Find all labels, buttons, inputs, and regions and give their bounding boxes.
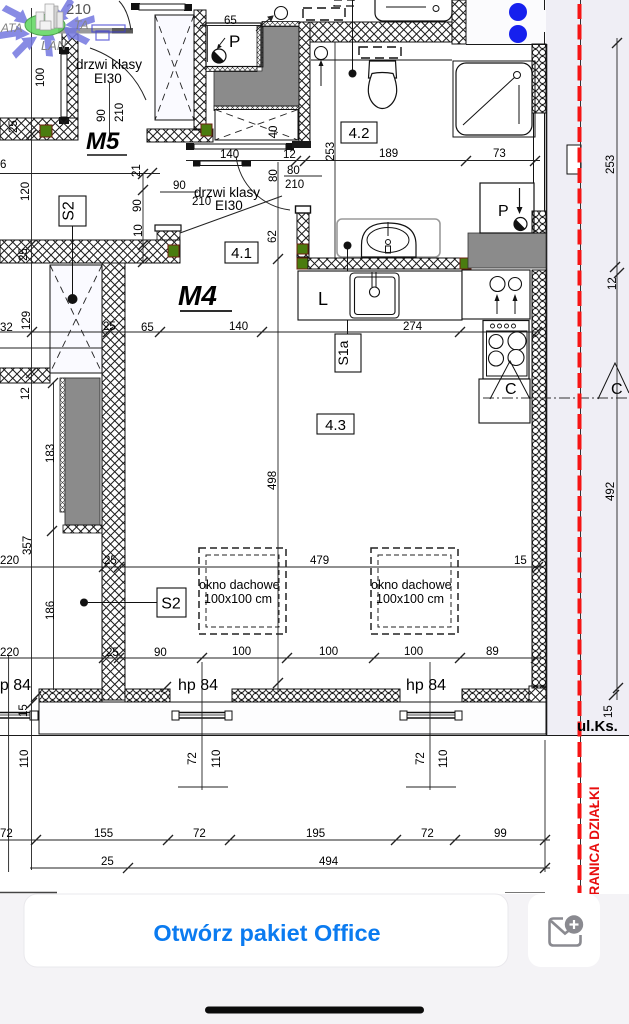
svg-text:hp 84: hp 84 xyxy=(406,677,446,694)
svg-text:C: C xyxy=(505,381,517,398)
svg-text:TA: TA xyxy=(74,18,88,32)
svg-text:110: 110 xyxy=(438,750,450,768)
svg-text:90: 90 xyxy=(96,109,108,122)
svg-text:195: 195 xyxy=(306,828,325,840)
svg-text:65: 65 xyxy=(141,322,154,334)
svg-text:72: 72 xyxy=(187,752,199,765)
svg-text:210: 210 xyxy=(285,179,304,191)
svg-text:100: 100 xyxy=(319,646,338,658)
svg-text:274: 274 xyxy=(403,321,423,333)
svg-text:494: 494 xyxy=(319,856,339,868)
svg-text:62: 62 xyxy=(267,230,279,243)
svg-text:73: 73 xyxy=(493,148,506,160)
svg-text:21: 21 xyxy=(131,164,143,177)
svg-text:4.2: 4.2 xyxy=(349,125,370,142)
svg-text:90: 90 xyxy=(132,199,144,212)
svg-text:EI30: EI30 xyxy=(94,71,122,86)
svg-text:90: 90 xyxy=(154,647,167,659)
svg-text:25: 25 xyxy=(18,248,30,261)
svg-text:100x100 cm: 100x100 cm xyxy=(204,592,272,606)
svg-text:okno dachowe: okno dachowe xyxy=(199,578,280,592)
svg-text:P: P xyxy=(498,203,509,220)
svg-text:183: 183 xyxy=(45,444,57,463)
svg-text:hp 84: hp 84 xyxy=(178,677,218,694)
svg-text:72: 72 xyxy=(421,828,434,840)
svg-text:S1a: S1a xyxy=(335,340,351,365)
svg-text:253: 253 xyxy=(325,142,337,161)
svg-text:okno dachowe: okno dachowe xyxy=(371,578,452,592)
svg-text:479: 479 xyxy=(310,555,329,567)
svg-text:drzwi klasy: drzwi klasy xyxy=(76,57,142,72)
svg-text:220: 220 xyxy=(0,647,19,659)
svg-text:72: 72 xyxy=(0,828,13,840)
svg-text:357: 357 xyxy=(22,536,34,555)
svg-text:4.3: 4.3 xyxy=(325,417,346,434)
svg-text:89: 89 xyxy=(486,646,499,658)
svg-text:M5: M5 xyxy=(86,128,120,155)
svg-text:4.1: 4.1 xyxy=(231,245,252,262)
svg-text:99: 99 xyxy=(494,828,507,840)
svg-text:189: 189 xyxy=(379,148,398,160)
svg-text:90: 90 xyxy=(173,180,186,192)
svg-text:L: L xyxy=(318,289,328,309)
svg-text:65: 65 xyxy=(224,15,237,27)
svg-text:25: 25 xyxy=(8,120,20,133)
svg-text:12: 12 xyxy=(20,387,32,400)
svg-text:40: 40 xyxy=(268,126,280,139)
svg-text:EI30: EI30 xyxy=(215,198,243,213)
svg-text:LAN: LAN xyxy=(41,38,67,53)
svg-text:hp 84: hp 84 xyxy=(0,677,31,694)
svg-text:GRANICA DZIAŁKI: GRANICA DZIAŁKI xyxy=(587,787,602,907)
svg-text:140: 140 xyxy=(220,149,239,161)
svg-text:15: 15 xyxy=(18,704,30,717)
svg-text:220: 220 xyxy=(0,555,19,567)
svg-text:498: 498 xyxy=(267,471,279,490)
svg-text:110: 110 xyxy=(211,750,223,768)
svg-text:25: 25 xyxy=(101,856,114,868)
svg-text:210: 210 xyxy=(114,103,126,122)
svg-text:72: 72 xyxy=(193,828,206,840)
svg-text:100: 100 xyxy=(232,646,251,658)
svg-text:S2: S2 xyxy=(161,596,181,613)
svg-text:72: 72 xyxy=(415,752,427,765)
svg-text:32: 32 xyxy=(0,322,13,334)
svg-text:253: 253 xyxy=(605,155,617,174)
svg-text:M4: M4 xyxy=(178,280,217,311)
svg-text:6: 6 xyxy=(0,159,6,171)
svg-text:80: 80 xyxy=(268,169,280,182)
svg-text:15: 15 xyxy=(603,705,615,718)
svg-text:155: 155 xyxy=(94,828,113,840)
svg-text:ul.Ks.: ul.Ks. xyxy=(577,718,618,735)
svg-text:100: 100 xyxy=(404,646,423,658)
svg-text:12: 12 xyxy=(607,277,619,290)
svg-text:120: 120 xyxy=(20,182,32,201)
svg-text:186: 186 xyxy=(45,601,57,620)
svg-text:10: 10 xyxy=(133,224,145,237)
svg-text:25: 25 xyxy=(103,321,116,333)
svg-text:110: 110 xyxy=(19,750,31,768)
svg-text:25: 25 xyxy=(104,555,117,567)
svg-text:100: 100 xyxy=(35,68,47,87)
svg-text:12: 12 xyxy=(283,149,296,161)
svg-text:80: 80 xyxy=(287,165,300,177)
svg-text:S2: S2 xyxy=(61,201,78,221)
svg-text:492: 492 xyxy=(605,482,617,501)
svg-text:140: 140 xyxy=(229,321,248,333)
svg-text:25: 25 xyxy=(106,647,119,659)
svg-text:P: P xyxy=(229,32,240,51)
svg-text:15: 15 xyxy=(514,555,527,567)
svg-text:129: 129 xyxy=(21,311,33,330)
svg-text:Otwórz pakiet Office: Otwórz pakiet Office xyxy=(153,920,380,946)
svg-text:ATA: ATA xyxy=(0,21,23,35)
svg-text:100x100 cm: 100x100 cm xyxy=(376,592,444,606)
